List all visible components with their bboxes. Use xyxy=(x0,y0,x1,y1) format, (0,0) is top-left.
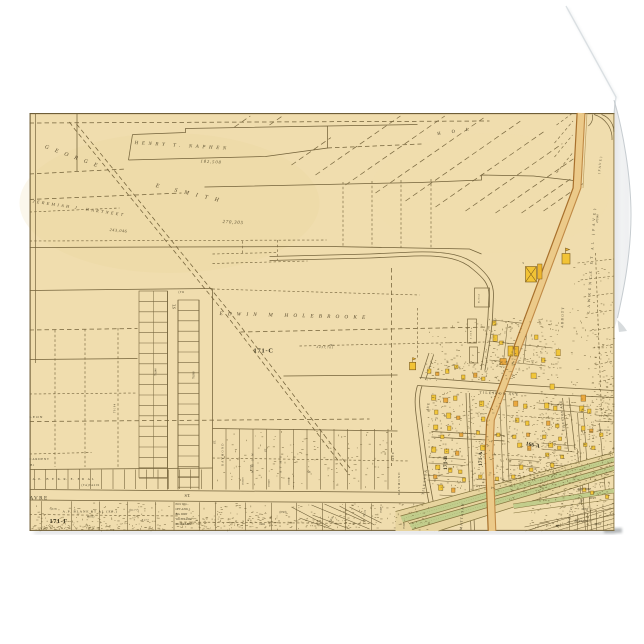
svg-text:AVE: AVE xyxy=(391,451,395,460)
svg-text:(EST): (EST) xyxy=(88,516,95,519)
svg-text:16328: 16328 xyxy=(250,464,253,471)
svg-text:4 1 7 7: 4 1 7 7 xyxy=(142,519,150,522)
svg-text:ST.: ST. xyxy=(308,471,312,474)
svg-text:HEADQUAT: HEADQUAT xyxy=(574,520,589,523)
svg-text:8101 WO...: 8101 WO... xyxy=(176,503,189,506)
svg-text:(6743): (6743) xyxy=(280,511,287,514)
svg-text:EPEE TONE: EPEE TONE xyxy=(577,488,592,491)
svg-text:RAYMOND: RAYMOND xyxy=(221,442,225,466)
svg-text:7 9 1 9 4: 7 9 1 9 4 xyxy=(114,403,117,413)
svg-text:KEPT: KEPT xyxy=(589,497,597,500)
svg-text:103218: 103218 xyxy=(288,477,291,485)
svg-text:A.P. BLANE ET AL (EP.): A.P. BLANE ET AL (EP.) xyxy=(63,510,118,514)
svg-text:(6 1 7 7): (6 1 7 7) xyxy=(130,509,139,512)
svg-text:171-F: 171-F xyxy=(50,518,68,525)
svg-text:A Y M O: A Y M O xyxy=(279,455,283,473)
svg-text:ST.: ST. xyxy=(185,493,191,498)
svg-text:RICO RAILS: RICO RAILS xyxy=(176,523,192,526)
svg-text:79,800: 79,800 xyxy=(193,371,196,379)
svg-text:MOST: MOST xyxy=(594,523,602,526)
svg-text:741: 741 xyxy=(330,344,335,347)
svg-text:79,940: 79,940 xyxy=(155,368,158,376)
svg-text:OFF-AND. 1: OFF-AND. 1 xyxy=(176,508,192,511)
svg-text:B , 9 1 4: B , 9 1 4 xyxy=(478,294,481,303)
svg-text:( T A ) T A 2 I X: ( T A ) T A 2 I X xyxy=(82,484,100,487)
svg-text:16450: 16450 xyxy=(403,522,406,529)
svg-text:AVRE: AVRE xyxy=(30,496,49,502)
svg-text:103448: 103448 xyxy=(268,479,271,487)
svg-text:A. P. B E K. R. E. E D: A. P. B E K. R. E. E D A L xyxy=(33,477,95,481)
svg-text:SPEC TONE: SPEC TONE xyxy=(598,429,611,432)
svg-text:BIG DIRT: BIG DIRT xyxy=(176,513,188,516)
svg-text:6104: 6104 xyxy=(260,523,266,526)
svg-text:ST.: ST. xyxy=(265,448,268,452)
svg-text:LEON: LEON xyxy=(30,415,44,419)
svg-text:WICH SANK: WICH SANK xyxy=(176,518,192,521)
svg-text:171-B: 171-B xyxy=(443,456,449,470)
svg-text:171-C: 171-C xyxy=(254,348,274,355)
svg-text:2 . 3 1 E: 2 . 3 1 E xyxy=(470,330,473,339)
svg-text:( T R: ( T R xyxy=(179,291,185,294)
svg-text:473140: 473140 xyxy=(595,214,599,223)
svg-text:ST.: ST. xyxy=(173,304,177,309)
svg-text:16448: 16448 xyxy=(380,506,383,513)
svg-text:163218: 163218 xyxy=(242,477,245,485)
svg-text:171-A: 171-A xyxy=(478,452,484,466)
svg-text:CARDENT: CARDENT xyxy=(30,457,50,461)
svg-text:RAYMOND: RAYMOND xyxy=(397,471,401,495)
svg-text:7,8 /70: 7,8 /70 xyxy=(50,508,58,511)
svg-text:ST.: ST. xyxy=(214,440,217,444)
svg-text:MOST: MOST xyxy=(581,508,589,511)
